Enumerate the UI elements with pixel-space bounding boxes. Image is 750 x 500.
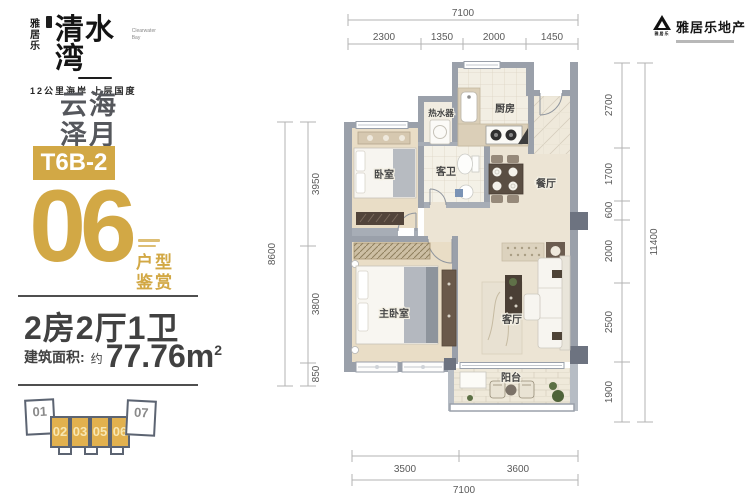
dim-label: 1700	[604, 162, 615, 185]
dimensions-top: 7100 2300 1350 2000 1450	[348, 8, 578, 50]
label-water-heater: 热水器	[428, 108, 454, 118]
dim-label: 2300	[373, 32, 396, 43]
floor-plan: 热水器 厨房 卧室 客卫 餐厅 主卧室 客厅 阳台 7100 2300 1350…	[0, 0, 750, 500]
dim-label: 850	[311, 365, 322, 382]
label-master-bedroom: 主卧室	[379, 307, 409, 320]
coffee-table	[524, 294, 540, 320]
label-living: 客厅	[501, 313, 522, 326]
dim-label: 7100	[453, 485, 476, 496]
dining-table	[489, 164, 523, 194]
dim-label: 7100	[452, 8, 475, 19]
balcony-cabinet	[460, 372, 486, 388]
lounge-chair	[519, 381, 534, 398]
dim-label: 11400	[649, 228, 660, 256]
label-balcony: 阳台	[501, 371, 521, 384]
dim-label: 2000	[483, 32, 506, 43]
dim-label: 1350	[431, 32, 454, 43]
dim-label: 2700	[604, 93, 615, 116]
dresser	[442, 270, 456, 346]
balcony-table	[506, 385, 517, 396]
dim-label: 3950	[311, 172, 322, 195]
toilet	[458, 154, 473, 174]
dimensions-left: 3950 3800 850 8600	[267, 122, 322, 386]
label-bedroom: 卧室	[374, 168, 394, 181]
label-guest-bath: 客卫	[435, 165, 456, 178]
dim-label: 2500	[604, 310, 615, 333]
label-kitchen: 厨房	[495, 102, 515, 115]
dim-label: 1900	[604, 380, 615, 403]
dim-label: 1450	[541, 32, 564, 43]
dimensions-bottom: 3500 3600 7100	[352, 450, 578, 496]
dim-label: 3500	[394, 464, 417, 475]
plant	[467, 395, 473, 401]
plant	[549, 382, 557, 390]
plant	[509, 278, 517, 286]
dim-label: 8600	[267, 242, 278, 265]
laundry-basket	[455, 189, 463, 197]
doormat	[502, 243, 544, 261]
plant	[552, 390, 564, 402]
dimensions-right: 2700 1700 600 2000 2500 1900 11400	[604, 63, 660, 422]
dim-label: 3600	[507, 464, 530, 475]
dim-label: 600	[604, 201, 615, 218]
label-dining: 餐厅	[535, 177, 556, 190]
dim-label: 2000	[604, 239, 615, 262]
water-heater-unit	[430, 120, 450, 144]
dim-label: 3800	[311, 292, 322, 315]
